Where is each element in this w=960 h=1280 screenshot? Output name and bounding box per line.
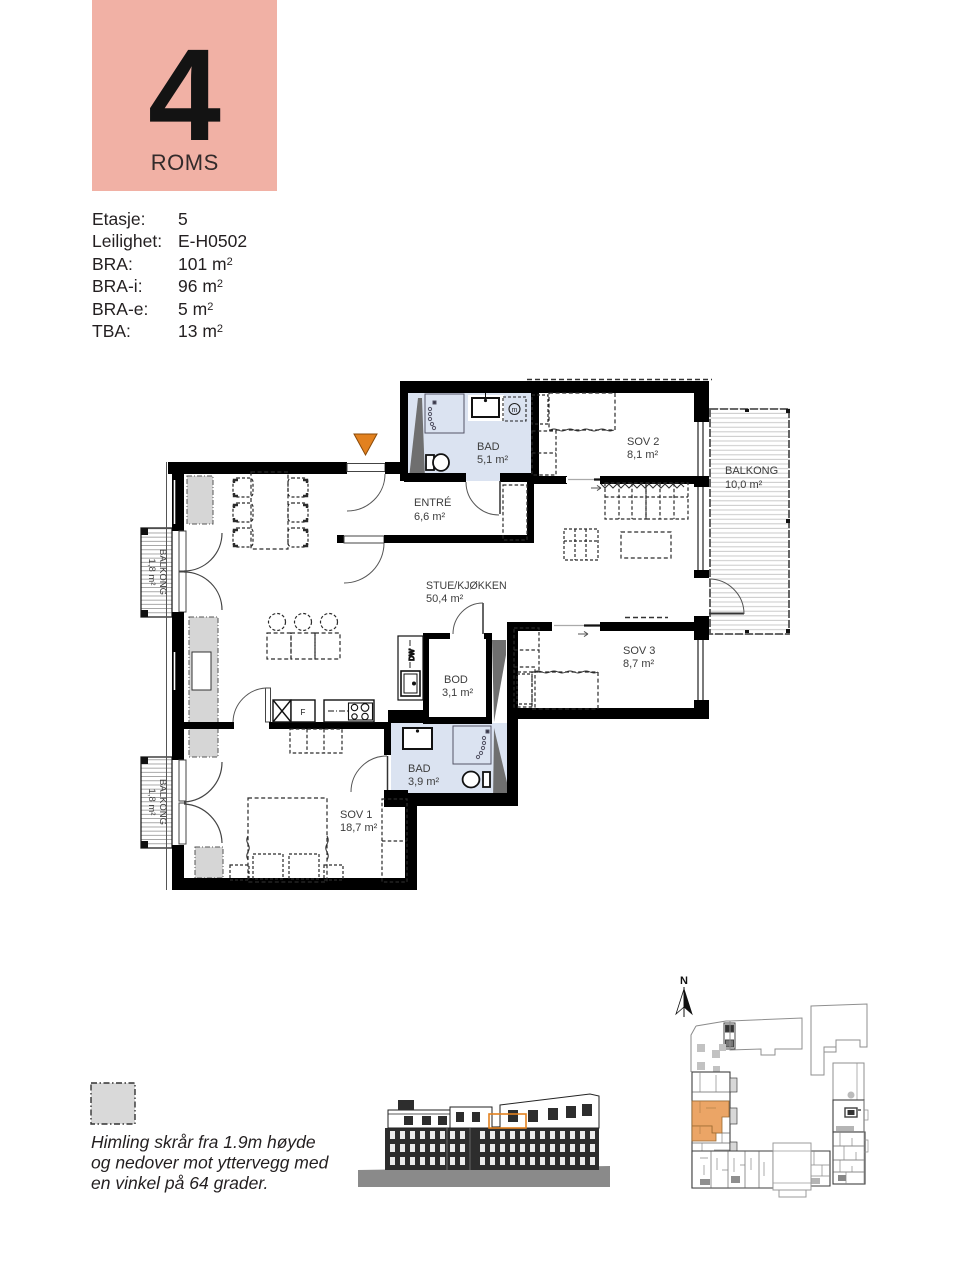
svg-text:18,7 m²: 18,7 m² bbox=[340, 822, 378, 834]
svg-text:6,6 m²: 6,6 m² bbox=[414, 511, 446, 523]
svg-text:10,0 m²: 10,0 m² bbox=[725, 479, 763, 491]
svg-text:ENTRÉ: ENTRÉ bbox=[414, 496, 451, 509]
svg-text:BOD: BOD bbox=[444, 674, 468, 686]
svg-text:STUE/KJØKKEN: STUE/KJØKKEN bbox=[426, 580, 507, 592]
svg-text:8,1 m²: 8,1 m² bbox=[627, 449, 659, 461]
svg-text:BAD: BAD bbox=[477, 441, 500, 453]
svg-text:BAD: BAD bbox=[408, 763, 431, 775]
svg-text:50,4 m²: 50,4 m² bbox=[426, 593, 464, 605]
svg-text:F: F bbox=[301, 708, 306, 717]
svg-text:SOV 1: SOV 1 bbox=[340, 809, 372, 821]
svg-text:Himling skrår fra 1.9m høydeog: Himling skrår fra 1.9m høydeog nedover m… bbox=[91, 1132, 330, 1193]
svg-text:8,7 m²: 8,7 m² bbox=[623, 658, 655, 670]
svg-text:m: m bbox=[512, 407, 518, 414]
svg-text:3,1 m²: 3,1 m² bbox=[442, 687, 474, 699]
svg-text:N: N bbox=[680, 975, 688, 987]
svg-text:BALKONG: BALKONG bbox=[725, 465, 778, 477]
svg-text:DW: DW bbox=[409, 649, 416, 661]
svg-text:SOV 3: SOV 3 bbox=[623, 645, 655, 657]
svg-text:3,9 m²: 3,9 m² bbox=[408, 776, 440, 788]
svg-text:SOV 2: SOV 2 bbox=[627, 436, 659, 448]
svg-text:5,1 m²: 5,1 m² bbox=[477, 454, 509, 466]
